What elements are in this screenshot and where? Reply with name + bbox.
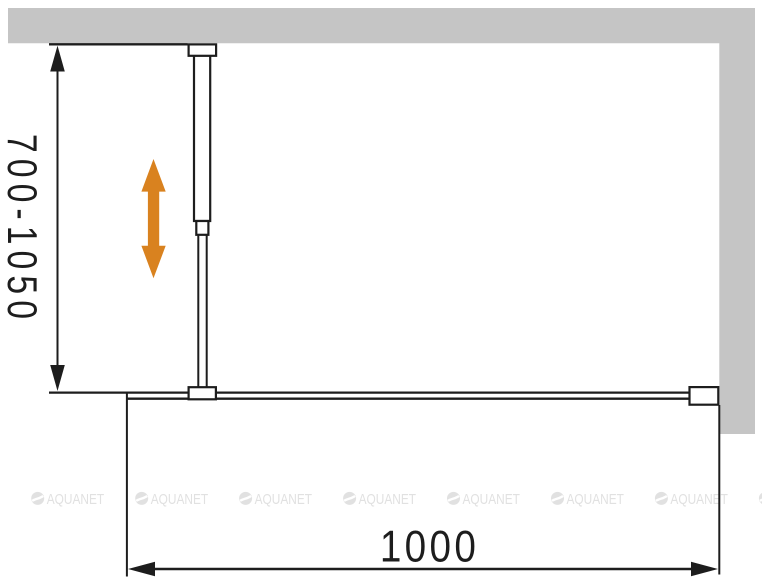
svg-text:1000: 1000 — [380, 521, 479, 571]
svg-text:AQUANET: AQUANET — [359, 491, 416, 507]
svg-text:AQUANET: AQUANET — [151, 491, 208, 507]
svg-text:AQUANET: AQUANET — [255, 491, 312, 507]
svg-text:AQUANET: AQUANET — [567, 491, 624, 507]
svg-text:AQUANET: AQUANET — [47, 491, 104, 507]
svg-text:700-1050: 700-1050 — [0, 134, 44, 325]
svg-text:AQUANET: AQUANET — [463, 491, 520, 507]
